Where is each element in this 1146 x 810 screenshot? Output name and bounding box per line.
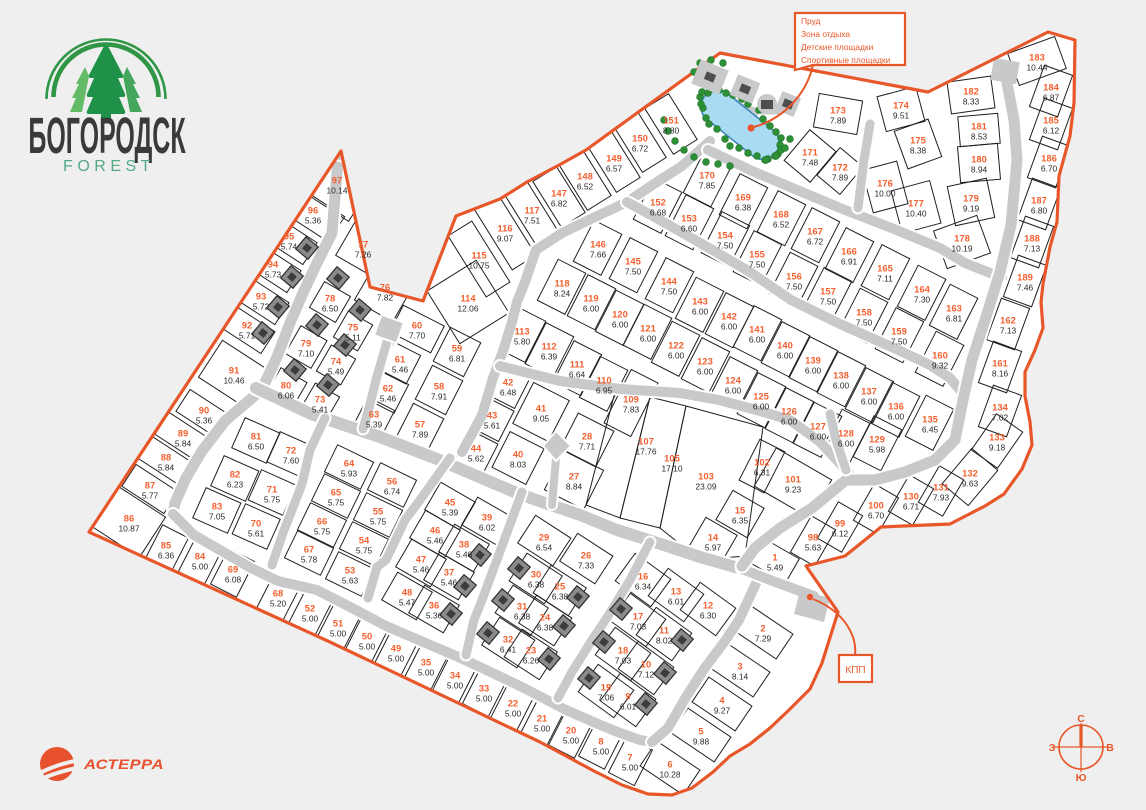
svg-text:17.76: 17.76 bbox=[636, 447, 657, 457]
svg-text:6.74: 6.74 bbox=[384, 487, 401, 497]
svg-text:24: 24 bbox=[540, 612, 551, 623]
svg-text:9.63: 9.63 bbox=[962, 479, 979, 489]
svg-text:5.46: 5.46 bbox=[380, 394, 397, 404]
svg-text:64: 64 bbox=[344, 458, 355, 469]
svg-text:71: 71 bbox=[267, 484, 277, 495]
svg-text:84: 84 bbox=[195, 551, 206, 562]
svg-text:9.19: 9.19 bbox=[963, 204, 980, 214]
svg-text:33: 33 bbox=[479, 683, 489, 694]
svg-text:7.29: 7.29 bbox=[755, 634, 772, 644]
svg-text:12.06: 12.06 bbox=[458, 304, 479, 314]
svg-text:5.49: 5.49 bbox=[767, 563, 784, 573]
svg-text:6.00: 6.00 bbox=[781, 417, 798, 427]
svg-text:6.70: 6.70 bbox=[1041, 164, 1058, 174]
svg-text:13: 13 bbox=[671, 586, 681, 597]
svg-text:5.00: 5.00 bbox=[593, 747, 610, 757]
svg-text:6.38: 6.38 bbox=[514, 612, 531, 622]
svg-text:90: 90 bbox=[199, 405, 209, 416]
svg-text:5.00: 5.00 bbox=[447, 681, 464, 691]
svg-text:17: 17 bbox=[633, 611, 643, 622]
svg-text:35: 35 bbox=[421, 657, 431, 668]
svg-text:160: 160 bbox=[932, 350, 948, 361]
svg-text:111: 111 bbox=[570, 359, 585, 370]
svg-text:83: 83 bbox=[212, 501, 222, 512]
svg-text:5.36: 5.36 bbox=[196, 416, 213, 426]
svg-text:79: 79 bbox=[301, 338, 311, 349]
svg-text:5.84: 5.84 bbox=[158, 463, 175, 473]
svg-text:30: 30 bbox=[531, 569, 541, 580]
svg-text:6.01: 6.01 bbox=[668, 597, 685, 607]
svg-text:94: 94 bbox=[268, 259, 279, 270]
svg-text:70: 70 bbox=[251, 518, 261, 529]
svg-text:5.00: 5.00 bbox=[505, 709, 522, 719]
svg-text:5.46: 5.46 bbox=[441, 578, 458, 588]
svg-text:126: 126 bbox=[781, 406, 797, 417]
svg-text:103: 103 bbox=[698, 471, 714, 482]
svg-text:185: 185 bbox=[1043, 115, 1059, 126]
svg-text:6.12: 6.12 bbox=[832, 529, 849, 539]
svg-text:Ю: Ю bbox=[1076, 772, 1087, 784]
svg-text:8.16: 8.16 bbox=[992, 369, 1009, 379]
svg-text:166: 166 bbox=[841, 246, 857, 257]
svg-text:15: 15 bbox=[735, 505, 745, 516]
svg-text:8: 8 bbox=[598, 736, 603, 747]
svg-text:7.85: 7.85 bbox=[699, 181, 716, 191]
svg-text:152: 152 bbox=[650, 197, 666, 208]
svg-text:7.89: 7.89 bbox=[832, 173, 849, 183]
svg-text:29: 29 bbox=[539, 532, 549, 543]
svg-text:114: 114 bbox=[460, 293, 476, 304]
svg-text:86: 86 bbox=[124, 513, 134, 524]
svg-text:9: 9 bbox=[625, 691, 630, 702]
svg-text:26: 26 bbox=[581, 550, 591, 561]
svg-text:39: 39 bbox=[482, 512, 492, 523]
svg-text:6.81: 6.81 bbox=[946, 314, 963, 324]
svg-text:132: 132 bbox=[962, 468, 978, 479]
svg-text:134: 134 bbox=[992, 402, 1008, 413]
svg-text:7.50: 7.50 bbox=[820, 297, 837, 307]
svg-text:6.38: 6.38 bbox=[537, 623, 554, 633]
svg-text:7.91: 7.91 bbox=[431, 392, 448, 402]
svg-text:5.39: 5.39 bbox=[442, 508, 459, 518]
svg-text:164: 164 bbox=[914, 284, 930, 295]
svg-text:138: 138 bbox=[833, 370, 849, 381]
svg-text:38: 38 bbox=[459, 539, 469, 550]
svg-text:53: 53 bbox=[345, 565, 355, 576]
svg-text:С: С bbox=[1077, 713, 1085, 725]
svg-text:6.23: 6.23 bbox=[227, 480, 244, 490]
svg-text:21: 21 bbox=[537, 713, 547, 724]
svg-text:АСТЕРРА: АСТЕРРА bbox=[83, 757, 164, 772]
svg-text:6.26: 6.26 bbox=[523, 656, 540, 666]
svg-text:6.35: 6.35 bbox=[732, 516, 749, 526]
svg-text:5.00: 5.00 bbox=[622, 763, 639, 773]
svg-text:6.70: 6.70 bbox=[868, 511, 885, 521]
svg-text:6.00: 6.00 bbox=[612, 320, 629, 330]
svg-text:101: 101 bbox=[785, 474, 801, 485]
svg-text:7.05: 7.05 bbox=[209, 512, 226, 522]
svg-text:16: 16 bbox=[638, 571, 648, 582]
svg-text:5.75: 5.75 bbox=[264, 495, 281, 505]
svg-text:76: 76 bbox=[380, 282, 390, 293]
svg-text:42: 42 bbox=[503, 377, 513, 388]
svg-text:87: 87 bbox=[145, 480, 155, 491]
svg-text:31: 31 bbox=[517, 601, 527, 612]
svg-text:5.00: 5.00 bbox=[534, 724, 551, 734]
svg-text:1: 1 bbox=[772, 552, 777, 563]
svg-text:8.24: 8.24 bbox=[554, 289, 571, 299]
svg-text:10.40: 10.40 bbox=[906, 209, 927, 219]
svg-text:7.50: 7.50 bbox=[749, 260, 766, 270]
svg-text:47: 47 bbox=[416, 554, 426, 565]
svg-text:6.57: 6.57 bbox=[606, 164, 623, 174]
svg-text:5.00: 5.00 bbox=[418, 668, 435, 678]
svg-text:50: 50 bbox=[362, 631, 372, 642]
svg-text:4: 4 bbox=[719, 695, 725, 706]
svg-text:60: 60 bbox=[412, 320, 422, 331]
svg-text:5.00: 5.00 bbox=[388, 654, 405, 664]
svg-text:187: 187 bbox=[1031, 195, 1047, 206]
svg-text:6.02: 6.02 bbox=[479, 523, 496, 533]
svg-text:6.39: 6.39 bbox=[541, 352, 558, 362]
svg-text:6.38: 6.38 bbox=[735, 203, 752, 213]
svg-text:6.52: 6.52 bbox=[577, 182, 594, 192]
svg-text:102: 102 bbox=[754, 457, 770, 468]
svg-text:6.34: 6.34 bbox=[635, 582, 652, 592]
svg-text:10: 10 bbox=[641, 659, 651, 670]
svg-text:6.00: 6.00 bbox=[640, 334, 657, 344]
svg-text:8.94: 8.94 bbox=[971, 165, 988, 175]
svg-text:139: 139 bbox=[805, 355, 821, 366]
svg-text:148: 148 bbox=[577, 171, 593, 182]
svg-text:162: 162 bbox=[1000, 315, 1016, 326]
svg-text:5.71: 5.71 bbox=[239, 331, 256, 341]
svg-text:6.41: 6.41 bbox=[500, 645, 517, 655]
svg-text:45: 45 bbox=[445, 497, 455, 508]
svg-text:51: 51 bbox=[333, 618, 343, 629]
svg-text:3: 3 bbox=[737, 661, 742, 672]
svg-text:7: 7 bbox=[627, 752, 632, 763]
svg-text:6.72: 6.72 bbox=[807, 237, 824, 247]
svg-text:149: 149 bbox=[606, 153, 622, 164]
svg-text:130: 130 bbox=[903, 491, 919, 502]
svg-text:141: 141 bbox=[749, 324, 765, 335]
svg-text:73: 73 bbox=[315, 394, 325, 405]
svg-text:180: 180 bbox=[971, 154, 987, 165]
svg-text:124: 124 bbox=[725, 375, 741, 386]
svg-text:5.00: 5.00 bbox=[359, 642, 376, 652]
svg-text:6.30: 6.30 bbox=[700, 611, 717, 621]
svg-text:6.68: 6.68 bbox=[650, 208, 667, 218]
svg-text:6.00: 6.00 bbox=[721, 322, 738, 332]
svg-text:В: В bbox=[1106, 742, 1114, 754]
svg-text:143: 143 bbox=[692, 296, 708, 307]
svg-text:5.46: 5.46 bbox=[392, 365, 409, 375]
svg-text:96: 96 bbox=[308, 205, 318, 216]
svg-text:184: 184 bbox=[1043, 82, 1059, 93]
svg-text:7.13: 7.13 bbox=[1024, 244, 1041, 254]
svg-text:5: 5 bbox=[698, 726, 703, 737]
svg-text:5.36: 5.36 bbox=[305, 216, 322, 226]
svg-text:7.50: 7.50 bbox=[661, 287, 678, 297]
svg-text:6.80: 6.80 bbox=[1031, 206, 1048, 216]
svg-text:6.71: 6.71 bbox=[903, 502, 920, 512]
svg-text:5.75: 5.75 bbox=[314, 527, 331, 537]
svg-text:7.83: 7.83 bbox=[623, 405, 640, 415]
svg-text:49: 49 bbox=[391, 643, 401, 654]
svg-text:34: 34 bbox=[450, 670, 461, 681]
svg-text:6.00: 6.00 bbox=[583, 304, 600, 314]
svg-text:135: 135 bbox=[922, 414, 938, 425]
svg-text:5.74: 5.74 bbox=[281, 242, 298, 252]
svg-text:116: 116 bbox=[497, 223, 512, 234]
svg-text:7.50: 7.50 bbox=[856, 318, 873, 328]
svg-text:5.73: 5.73 bbox=[265, 270, 282, 280]
svg-text:7.26: 7.26 bbox=[355, 250, 372, 260]
svg-text:85: 85 bbox=[161, 540, 171, 551]
svg-text:18: 18 bbox=[618, 645, 628, 656]
svg-text:92: 92 bbox=[242, 320, 252, 331]
svg-text:8.14: 8.14 bbox=[732, 672, 749, 682]
svg-text:5.46: 5.46 bbox=[456, 550, 473, 560]
svg-text:5.11: 5.11 bbox=[345, 333, 361, 343]
svg-text:127: 127 bbox=[810, 421, 826, 432]
svg-text:5.63: 5.63 bbox=[342, 576, 359, 586]
svg-text:6.00: 6.00 bbox=[810, 432, 827, 442]
svg-text:173: 173 bbox=[830, 105, 846, 116]
svg-text:10.87: 10.87 bbox=[119, 524, 140, 534]
svg-text:9.23: 9.23 bbox=[785, 485, 802, 495]
svg-text:117: 117 bbox=[524, 205, 539, 216]
svg-text:183: 183 bbox=[1029, 52, 1045, 63]
svg-text:6.87: 6.87 bbox=[1043, 93, 1060, 103]
svg-text:28: 28 bbox=[582, 431, 592, 442]
svg-text:7.50: 7.50 bbox=[717, 241, 734, 251]
svg-text:89: 89 bbox=[178, 428, 188, 439]
svg-text:72: 72 bbox=[286, 445, 296, 456]
svg-text:82: 82 bbox=[230, 469, 240, 480]
svg-text:20: 20 bbox=[566, 725, 576, 736]
svg-text:122: 122 bbox=[668, 340, 684, 351]
svg-text:140: 140 bbox=[777, 340, 793, 351]
svg-text:189: 189 bbox=[1017, 272, 1033, 283]
svg-text:10.46: 10.46 bbox=[224, 376, 245, 386]
svg-text:6.00: 6.00 bbox=[805, 366, 822, 376]
svg-text:9.07: 9.07 bbox=[497, 234, 514, 244]
svg-text:5.78: 5.78 bbox=[301, 555, 318, 565]
svg-text:107: 107 bbox=[638, 436, 654, 447]
svg-text:112: 112 bbox=[541, 341, 556, 352]
svg-text:6.38: 6.38 bbox=[552, 592, 569, 602]
svg-text:10.75: 10.75 bbox=[469, 261, 490, 271]
svg-text:БОГОРОДСК: БОГОРОДСК bbox=[28, 107, 185, 164]
svg-text:7.30: 7.30 bbox=[914, 295, 931, 305]
svg-text:63: 63 bbox=[369, 409, 379, 420]
svg-text:52: 52 bbox=[305, 603, 315, 614]
svg-text:7.50: 7.50 bbox=[625, 267, 642, 277]
svg-text:6.64: 6.64 bbox=[569, 370, 586, 380]
svg-text:74: 74 bbox=[331, 356, 342, 367]
svg-text:32: 32 bbox=[503, 634, 513, 645]
svg-text:105: 105 bbox=[664, 453, 680, 464]
svg-text:57: 57 bbox=[415, 419, 425, 430]
svg-text:5.00: 5.00 bbox=[476, 694, 493, 704]
svg-text:7.06: 7.06 bbox=[598, 693, 615, 703]
svg-text:5.61: 5.61 bbox=[248, 529, 265, 539]
svg-text:118: 118 bbox=[554, 278, 569, 289]
svg-text:5.75: 5.75 bbox=[356, 546, 373, 556]
svg-text:150: 150 bbox=[632, 133, 648, 144]
svg-text:7.60: 7.60 bbox=[283, 456, 300, 466]
svg-text:109: 109 bbox=[623, 394, 639, 405]
svg-text:5.00: 5.00 bbox=[563, 736, 580, 746]
svg-text:5.46: 5.46 bbox=[413, 565, 430, 575]
svg-text:6.36: 6.36 bbox=[158, 551, 175, 561]
svg-text:58: 58 bbox=[434, 381, 444, 392]
svg-text:174: 174 bbox=[893, 100, 909, 111]
svg-text:7.89: 7.89 bbox=[830, 116, 847, 126]
svg-text:22: 22 bbox=[508, 698, 518, 709]
svg-text:6.38: 6.38 bbox=[528, 580, 545, 590]
svg-text:10.44: 10.44 bbox=[1027, 63, 1048, 73]
svg-text:55: 55 bbox=[373, 506, 383, 517]
svg-text:133: 133 bbox=[989, 432, 1005, 443]
svg-text:5.46: 5.46 bbox=[427, 536, 444, 546]
svg-text:10.14: 10.14 bbox=[327, 186, 348, 196]
svg-text:176: 176 bbox=[877, 178, 893, 189]
svg-text:158: 158 bbox=[856, 307, 872, 318]
svg-text:10.28: 10.28 bbox=[660, 770, 681, 780]
svg-text:9.05: 9.05 bbox=[533, 414, 550, 424]
svg-text:43: 43 bbox=[487, 410, 497, 421]
svg-text:5.93: 5.93 bbox=[341, 469, 358, 479]
svg-text:6.00: 6.00 bbox=[697, 367, 714, 377]
svg-text:7.33: 7.33 bbox=[578, 561, 595, 571]
svg-text:169: 169 bbox=[735, 192, 751, 203]
svg-text:8.38: 8.38 bbox=[910, 146, 927, 156]
svg-text:151: 151 bbox=[663, 115, 679, 126]
svg-text:25: 25 bbox=[555, 581, 565, 592]
svg-text:163: 163 bbox=[946, 303, 962, 314]
svg-text:88: 88 bbox=[161, 452, 171, 463]
svg-text:177: 177 bbox=[908, 198, 924, 209]
svg-text:146: 146 bbox=[590, 239, 606, 250]
svg-text:7.70: 7.70 bbox=[409, 331, 426, 341]
svg-text:9.32: 9.32 bbox=[932, 361, 949, 371]
svg-text:165: 165 bbox=[877, 263, 893, 274]
svg-text:7.89: 7.89 bbox=[412, 430, 429, 440]
svg-text:115: 115 bbox=[471, 250, 486, 261]
svg-text:8.03: 8.03 bbox=[510, 460, 527, 470]
svg-text:99: 99 bbox=[835, 518, 845, 529]
svg-text:Пруд: Пруд bbox=[801, 16, 820, 26]
svg-text:6.06: 6.06 bbox=[278, 391, 295, 401]
svg-text:FOREST: FOREST bbox=[63, 158, 155, 175]
svg-text:6.54: 6.54 bbox=[536, 543, 553, 553]
svg-text:156: 156 bbox=[786, 271, 802, 282]
svg-text:5.36: 5.36 bbox=[426, 611, 443, 621]
svg-text:6.00: 6.00 bbox=[692, 307, 709, 317]
svg-text:145: 145 bbox=[625, 256, 641, 267]
svg-text:6.50: 6.50 bbox=[248, 442, 265, 452]
svg-text:19: 19 bbox=[601, 682, 611, 693]
svg-text:5.00: 5.00 bbox=[302, 614, 319, 624]
svg-text:27: 27 bbox=[569, 471, 579, 482]
svg-text:5.97: 5.97 bbox=[705, 543, 722, 553]
svg-text:5.77: 5.77 bbox=[142, 491, 159, 501]
svg-text:181: 181 bbox=[971, 121, 987, 132]
svg-text:6.00: 6.00 bbox=[861, 397, 878, 407]
svg-text:170: 170 bbox=[699, 170, 715, 181]
svg-text:136: 136 bbox=[888, 401, 904, 412]
svg-text:23.09: 23.09 bbox=[696, 482, 717, 492]
svg-text:128: 128 bbox=[838, 428, 854, 439]
svg-text:129: 129 bbox=[869, 434, 885, 445]
svg-text:167: 167 bbox=[807, 226, 823, 237]
svg-text:8.02: 8.02 bbox=[656, 636, 673, 646]
svg-text:5.72: 5.72 bbox=[253, 302, 270, 312]
svg-text:5.75: 5.75 bbox=[328, 498, 345, 508]
svg-text:61: 61 bbox=[395, 354, 405, 365]
svg-text:91: 91 bbox=[229, 365, 239, 376]
svg-text:Зона отдыха: Зона отдыха bbox=[801, 29, 850, 39]
svg-text:155: 155 bbox=[749, 249, 765, 260]
svg-text:Спортивные площадки: Спортивные площадки bbox=[801, 55, 891, 65]
svg-text:161: 161 bbox=[992, 358, 1008, 369]
svg-text:5.98: 5.98 bbox=[869, 445, 886, 455]
svg-text:6.91: 6.91 bbox=[841, 257, 858, 267]
svg-text:175: 175 bbox=[910, 135, 926, 146]
svg-text:6.48: 6.48 bbox=[500, 388, 517, 398]
svg-text:6.00: 6.00 bbox=[777, 351, 794, 361]
svg-text:5.00: 5.00 bbox=[192, 562, 209, 572]
svg-text:9.51: 9.51 bbox=[893, 111, 910, 121]
svg-text:7.50: 7.50 bbox=[891, 337, 908, 347]
svg-text:5.63: 5.63 bbox=[805, 543, 822, 553]
svg-text:6.12: 6.12 bbox=[1043, 126, 1060, 136]
svg-text:131: 131 bbox=[933, 482, 949, 493]
svg-text:6.01: 6.01 bbox=[620, 702, 637, 712]
svg-text:7.93: 7.93 bbox=[933, 493, 950, 503]
svg-text:6.00: 6.00 bbox=[888, 412, 905, 422]
svg-text:6.00: 6.00 bbox=[833, 381, 850, 391]
svg-text:41: 41 bbox=[536, 403, 546, 414]
svg-text:Детские площадки: Детские площадки bbox=[801, 42, 874, 52]
svg-text:6.00: 6.00 bbox=[725, 386, 742, 396]
svg-text:67: 67 bbox=[304, 544, 314, 555]
svg-text:9.27: 9.27 bbox=[714, 706, 731, 716]
svg-text:147: 147 bbox=[551, 188, 567, 199]
svg-text:77: 77 bbox=[358, 239, 368, 250]
svg-text:7.71: 7.71 bbox=[579, 442, 596, 452]
svg-text:178: 178 bbox=[954, 233, 970, 244]
svg-text:8.80: 8.80 bbox=[663, 126, 680, 136]
svg-text:7.12: 7.12 bbox=[638, 670, 655, 680]
svg-text:56: 56 bbox=[387, 476, 397, 487]
svg-text:62: 62 bbox=[383, 383, 393, 394]
svg-text:5.84: 5.84 bbox=[175, 439, 192, 449]
svg-text:142: 142 bbox=[721, 311, 737, 322]
svg-text:6.00: 6.00 bbox=[753, 402, 770, 412]
svg-text:6.45: 6.45 bbox=[922, 425, 939, 435]
svg-text:9.18: 9.18 bbox=[989, 443, 1006, 453]
svg-text:154: 154 bbox=[717, 230, 733, 241]
svg-text:113: 113 bbox=[514, 326, 529, 337]
svg-text:5.20: 5.20 bbox=[270, 599, 287, 609]
svg-text:7.82: 7.82 bbox=[377, 293, 394, 303]
svg-text:69: 69 bbox=[228, 564, 238, 575]
svg-text:44: 44 bbox=[471, 443, 482, 454]
